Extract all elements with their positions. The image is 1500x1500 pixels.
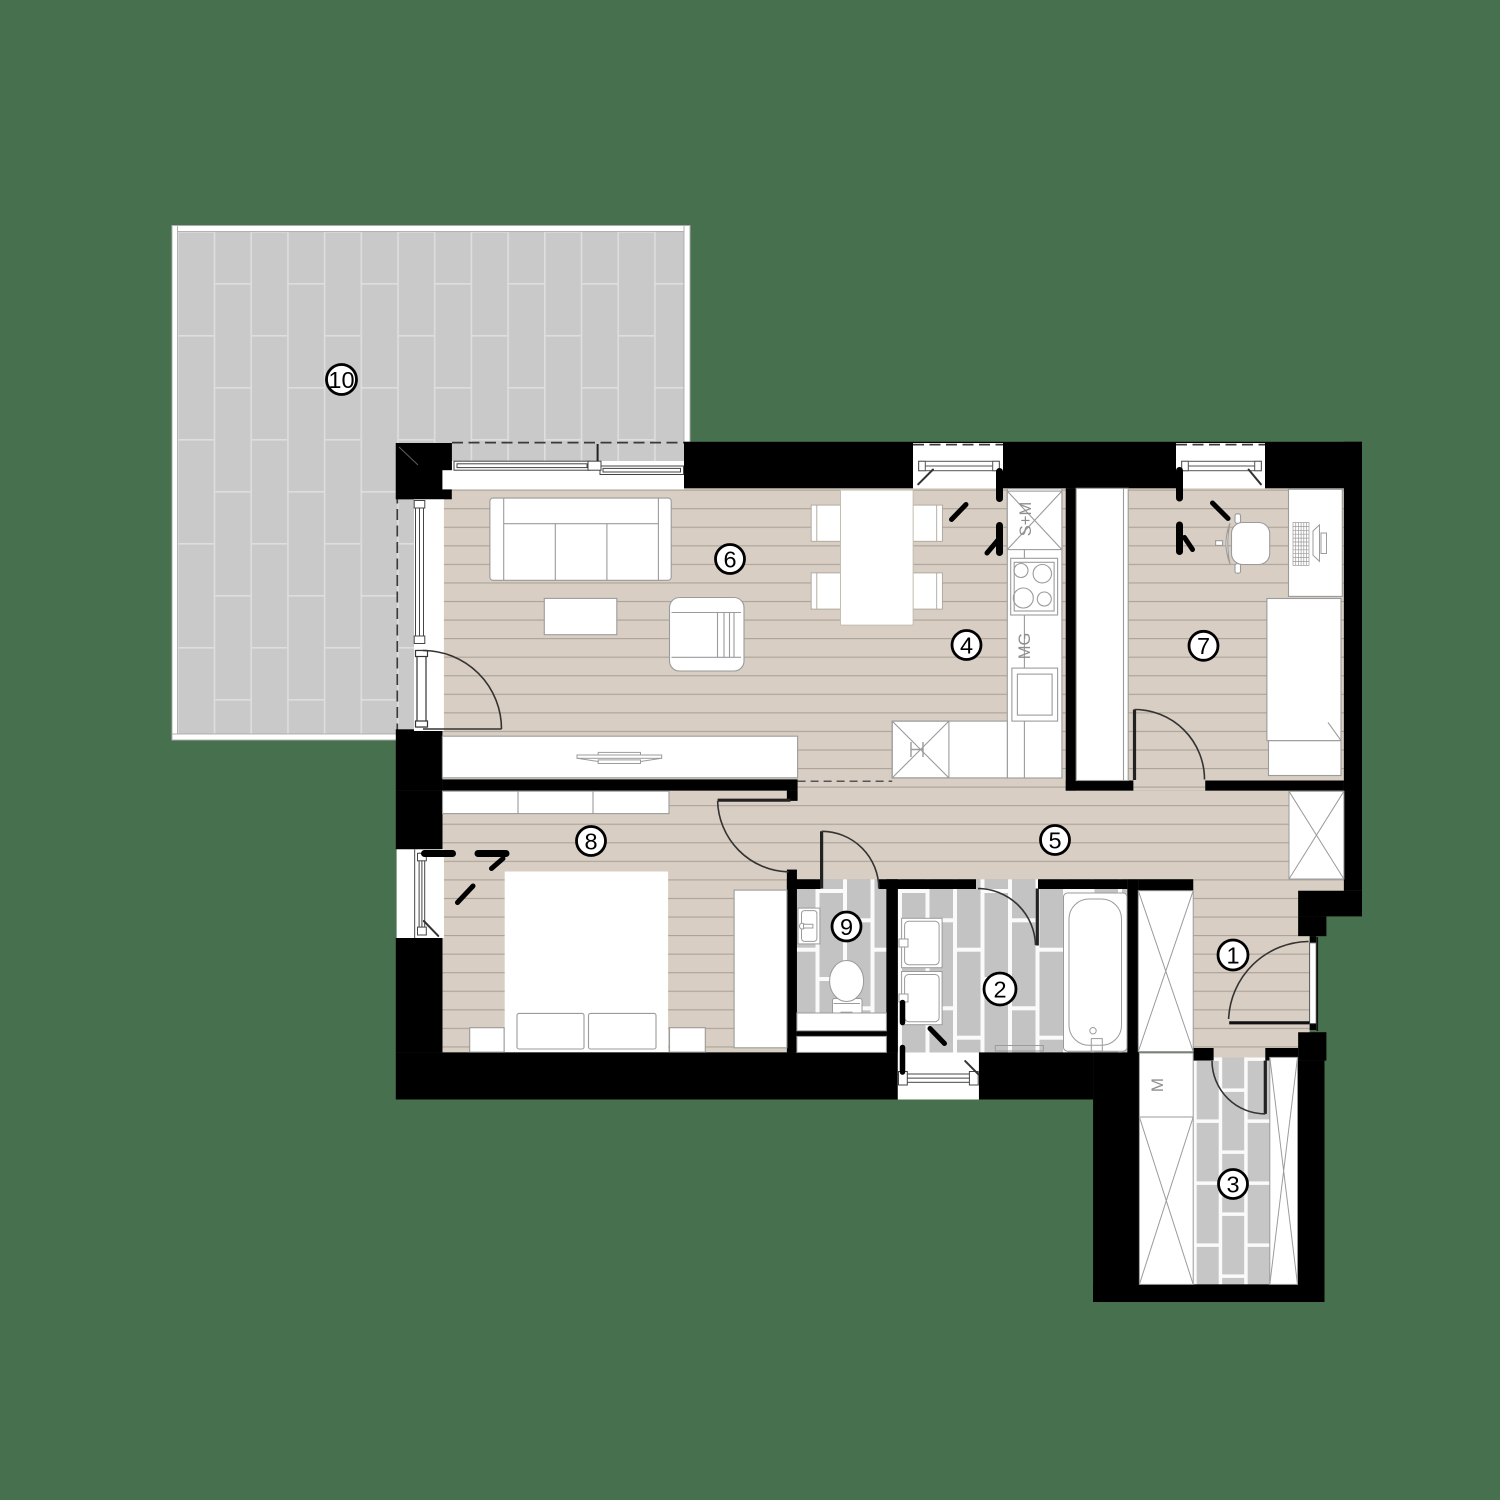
svg-text:6: 6 — [723, 546, 736, 572]
svg-text:9: 9 — [840, 914, 853, 940]
svg-text:MG: MG — [1016, 633, 1034, 660]
svg-text:2: 2 — [993, 976, 1006, 1002]
svg-text:4: 4 — [960, 632, 973, 658]
svg-text:M: M — [1148, 1078, 1167, 1092]
svg-text:8: 8 — [584, 828, 597, 854]
svg-text:10: 10 — [328, 367, 354, 393]
svg-text:7: 7 — [1197, 633, 1210, 659]
svg-text:5: 5 — [1048, 827, 1061, 853]
svg-text:1: 1 — [1226, 942, 1239, 968]
svg-text:S+M: S+M — [1017, 502, 1035, 536]
svg-text:3: 3 — [1226, 1171, 1239, 1197]
